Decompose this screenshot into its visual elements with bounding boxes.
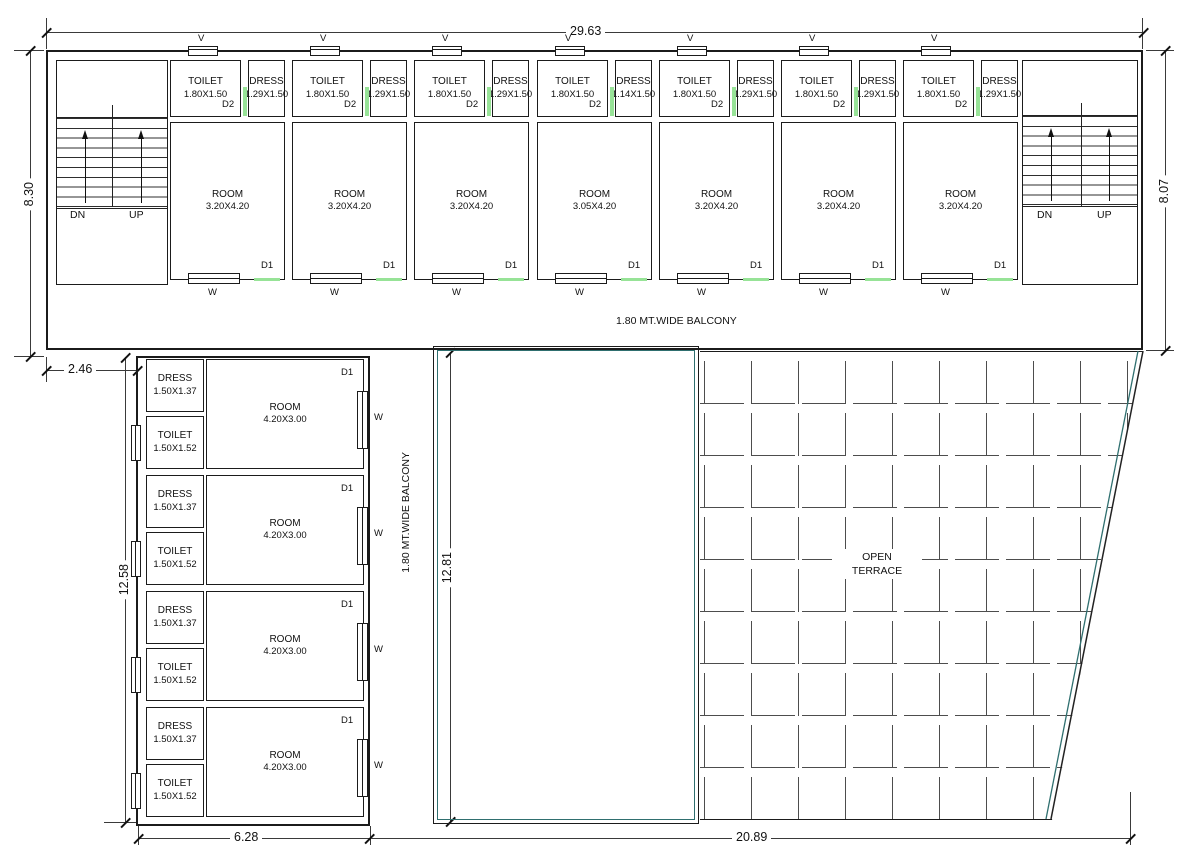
room: ROOM3.20X4.20 xyxy=(414,122,529,280)
window-label: W xyxy=(575,288,584,298)
vent-label: V xyxy=(198,34,204,44)
dress-room: DRESS1.50X1.37 xyxy=(146,707,204,760)
dress-room: DRESS1.29X1.50 xyxy=(492,60,529,117)
toilet-room: TOILET1.50X1.52 xyxy=(146,648,204,701)
door-d1-opening xyxy=(498,278,524,281)
door-d1-label: D1 xyxy=(505,261,517,271)
stair-arrow-up xyxy=(1109,133,1110,201)
window-marker xyxy=(357,739,368,797)
window-label: W xyxy=(374,645,383,655)
open-terrace xyxy=(700,351,1143,820)
vent-marker xyxy=(677,46,707,56)
window-label: W xyxy=(941,288,950,298)
window-marker xyxy=(131,541,141,577)
dim-extension xyxy=(1146,350,1174,351)
vent-marker xyxy=(555,46,585,56)
top-unit-7: V TOILET1.80X1.50 DRESS1.29X1.50 D2 ROOM… xyxy=(901,60,1019,292)
window-label: W xyxy=(330,288,339,298)
door-d2-label: D2 xyxy=(833,100,845,110)
toilet-room: TOILET1.50X1.52 xyxy=(146,532,204,585)
vent-label: V xyxy=(687,34,693,44)
door-d1-label: D1 xyxy=(341,600,353,610)
dress-room: DRESS1.14X1.50 xyxy=(615,60,652,117)
door-d2-opening xyxy=(854,87,858,116)
window-marker xyxy=(131,657,141,693)
room: ROOM3.20X4.20 xyxy=(903,122,1018,280)
wing-unit-1: DRESS1.50X1.37 TOILET1.50X1.52 ROOM4.20X… xyxy=(138,359,370,473)
door-d1-opening xyxy=(376,278,402,281)
dress-room: DRESS1.50X1.37 xyxy=(146,591,204,644)
stair-divider xyxy=(1081,103,1082,207)
room: ROOM3.20X4.20 xyxy=(659,122,774,280)
door-d1-opening xyxy=(254,278,280,281)
door-d1-label: D1 xyxy=(261,261,273,271)
room: ROOM3.05X4.20 xyxy=(537,122,652,280)
door-d2-opening xyxy=(243,87,247,116)
room: ROOM3.20X4.20 xyxy=(170,122,285,280)
window-marker xyxy=(799,273,851,284)
window-marker xyxy=(357,507,368,565)
dress-room: DRESS1.29X1.50 xyxy=(737,60,774,117)
courtyard xyxy=(433,346,699,824)
wing-unit-3: DRESS1.50X1.37 TOILET1.50X1.52 ROOM4.20X… xyxy=(138,591,370,705)
stair-up-label: UP xyxy=(1097,209,1112,221)
stair-dn-label: DN xyxy=(70,209,85,221)
vent-marker xyxy=(432,46,462,56)
staircase-right: DN UP xyxy=(1022,60,1138,285)
stair-up-label: UP xyxy=(129,209,144,221)
door-d1-label: D1 xyxy=(341,484,353,494)
open-terrace-label: OPEN TERRACE xyxy=(832,549,922,579)
door-d1-label: D1 xyxy=(341,368,353,378)
door-d2-label: D2 xyxy=(711,100,723,110)
window-label: W xyxy=(374,529,383,539)
door-d2-label: D2 xyxy=(222,100,234,110)
dim-offset-value: 2.46 xyxy=(64,362,96,376)
door-d2-opening xyxy=(732,87,736,116)
door-d1-label: D1 xyxy=(872,261,884,271)
dress-room: DRESS1.50X1.37 xyxy=(146,359,204,412)
dress-room: DRESS1.29X1.50 xyxy=(859,60,896,117)
dress-room: DRESS1.50X1.37 xyxy=(146,475,204,528)
top-unit-4: V TOILET1.80X1.50 DRESS1.14X1.50 D2 ROOM… xyxy=(535,60,653,292)
window-marker xyxy=(131,425,141,461)
top-unit-6: V TOILET1.80X1.50 DRESS1.29X1.50 D2 ROOM… xyxy=(779,60,897,292)
wing-unit-2: DRESS1.50X1.37 TOILET1.50X1.52 ROOM4.20X… xyxy=(138,475,370,589)
window-marker xyxy=(131,773,141,809)
door-d1-label: D1 xyxy=(341,716,353,726)
window-marker xyxy=(188,273,240,284)
vent-marker xyxy=(310,46,340,56)
door-d2-label: D2 xyxy=(466,100,478,110)
dim-wingw-value: 6.28 xyxy=(230,830,262,844)
top-unit-3: V TOILET1.80X1.50 DRESS1.29X1.50 D2 ROOM… xyxy=(412,60,530,292)
door-d1-opening xyxy=(865,278,891,281)
toilet-room: TOILET1.50X1.52 xyxy=(146,416,204,469)
vent-label: V xyxy=(931,34,937,44)
room: ROOM3.20X4.20 xyxy=(781,122,896,280)
dress-room: DRESS1.29X1.50 xyxy=(370,60,407,117)
top-unit-1: V TOILET1.80X1.50 DRESS1.29X1.50 D2 ROOM… xyxy=(168,60,286,292)
balcony-left-label: 1.80 MT.WIDE BALCONY xyxy=(400,452,412,573)
stair-dn-label: DN xyxy=(1037,209,1052,221)
dress-room: DRESS1.29X1.50 xyxy=(981,60,1018,117)
door-d2-label: D2 xyxy=(955,100,967,110)
door-d2-label: D2 xyxy=(589,100,601,110)
terrace-label-line2: TERRACE xyxy=(834,564,920,578)
vent-marker xyxy=(799,46,829,56)
window-label: W xyxy=(208,288,217,298)
staircase-left: DN UP xyxy=(56,60,168,285)
door-d1-opening xyxy=(987,278,1013,281)
dim-top-value: 29.63 xyxy=(566,24,605,38)
window-label: W xyxy=(374,413,383,423)
door-d1-label: D1 xyxy=(383,261,395,271)
dim-bottom-value: 20.89 xyxy=(732,830,771,844)
door-d2-label: D2 xyxy=(344,100,356,110)
window-label: W xyxy=(452,288,461,298)
door-d1-label: D1 xyxy=(750,261,762,271)
door-d1-label: D1 xyxy=(628,261,640,271)
stair-divider xyxy=(112,105,113,207)
terrace-label-line1: OPEN xyxy=(834,550,920,564)
window-marker xyxy=(432,273,484,284)
door-d1-opening xyxy=(621,278,647,281)
room: ROOM3.20X4.20 xyxy=(292,122,407,280)
door-d2-opening xyxy=(610,87,614,116)
window-marker xyxy=(357,391,368,449)
door-d2-opening xyxy=(365,87,369,116)
vent-label: V xyxy=(442,34,448,44)
window-marker xyxy=(357,623,368,681)
stair-treads xyxy=(1023,115,1137,207)
door-d2-opening xyxy=(487,87,491,116)
stair-arrow-dn xyxy=(1051,133,1052,201)
vent-label: V xyxy=(320,34,326,44)
balcony-top-label: 1.80 MT.WIDE BALCONY xyxy=(616,315,737,327)
top-unit-2: V TOILET1.80X1.50 DRESS1.29X1.50 D2 ROOM… xyxy=(290,60,408,292)
dim-wing-value: 12.58 xyxy=(117,560,131,599)
dim-left-value: 8.30 xyxy=(22,178,36,210)
dress-room: DRESS1.29X1.50 xyxy=(248,60,285,117)
window-marker xyxy=(555,273,607,284)
window-marker xyxy=(921,273,973,284)
dim-extension xyxy=(104,822,138,823)
top-unit-5: V TOILET1.80X1.50 DRESS1.29X1.50 D2 ROOM… xyxy=(657,60,775,292)
stair-arrow-up xyxy=(141,135,142,203)
dim-extension xyxy=(1146,50,1174,51)
window-marker xyxy=(310,273,362,284)
door-d1-opening xyxy=(743,278,769,281)
stair-arrow-dn xyxy=(85,135,86,203)
window-label: W xyxy=(374,761,383,771)
toilet-room: TOILET1.50X1.52 xyxy=(146,764,204,817)
window-marker xyxy=(677,273,729,284)
vent-marker xyxy=(188,46,218,56)
door-d2-opening xyxy=(976,87,980,116)
floor-plan: 29.63 8.30 8.07 2.46 12.58 12.81 6.28 20… xyxy=(0,0,1179,861)
window-label: W xyxy=(697,288,706,298)
window-label: W xyxy=(819,288,828,298)
vent-label: V xyxy=(809,34,815,44)
door-d1-label: D1 xyxy=(994,261,1006,271)
vent-marker xyxy=(921,46,951,56)
vent-label: V xyxy=(565,34,571,44)
wing-unit-4: DRESS1.50X1.37 TOILET1.50X1.52 ROOM4.20X… xyxy=(138,707,370,821)
dim-right-value: 8.07 xyxy=(1157,175,1171,207)
